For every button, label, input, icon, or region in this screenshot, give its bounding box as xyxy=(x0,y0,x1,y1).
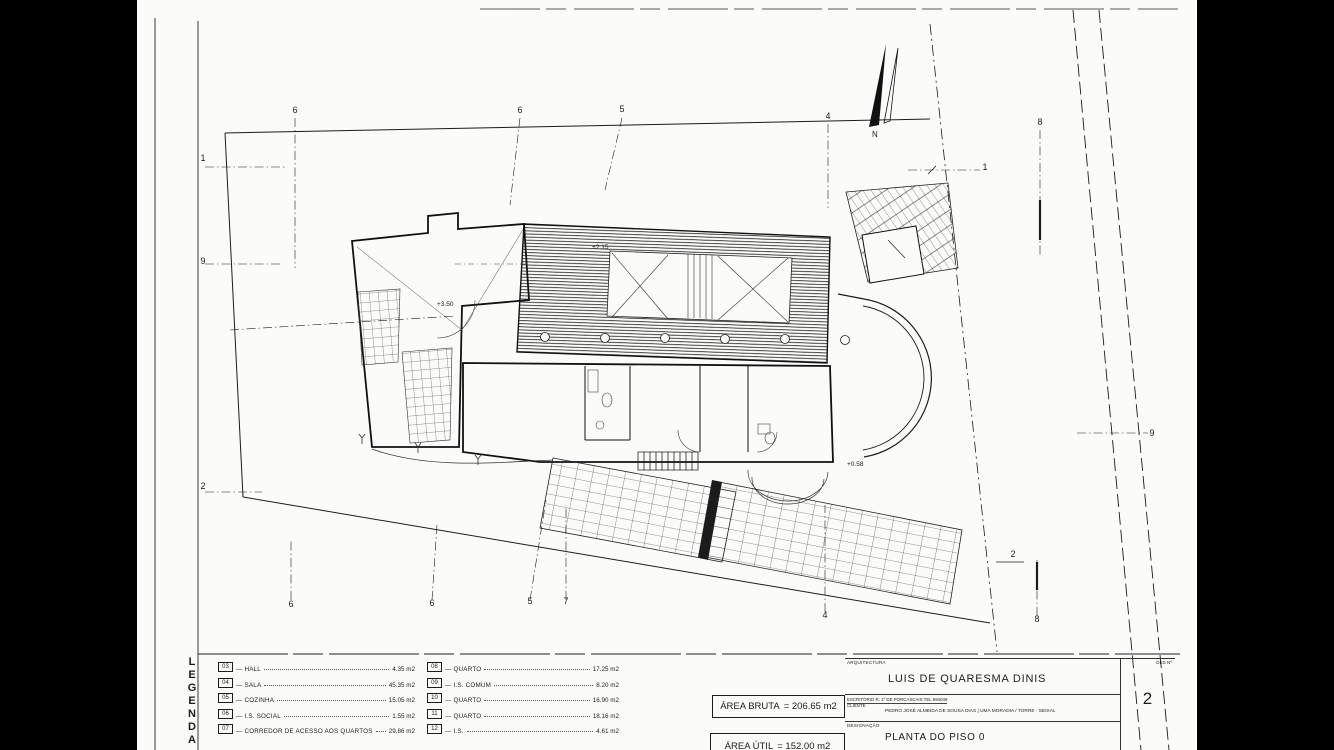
legend-item-label: — QUARTO xyxy=(445,697,481,704)
legend-leader-line xyxy=(284,716,389,717)
legend-item-area: 18.16 m2 xyxy=(593,713,619,720)
designation-label: DESIGNAÇÃO xyxy=(847,723,880,728)
legend-item: 05— COZINHA15.05 m2 xyxy=(218,693,415,704)
legend-leader-line xyxy=(376,731,386,732)
legend-leader-line xyxy=(264,669,389,670)
legend: LEGENDA 03— HALL4.35 m204— SALA45.35 m20… xyxy=(199,656,629,750)
legend-leader-line xyxy=(484,700,589,701)
legend-vertical-title: LEGENDA xyxy=(186,656,198,747)
legend-item-number: 11 xyxy=(427,709,442,719)
legend-item: 03— HALL4.35 m2 xyxy=(218,662,415,673)
legend-item-number: 04 xyxy=(218,678,233,688)
legend-item-number: 07 xyxy=(218,724,233,734)
drawing-title: PLANTA DO PISO 0 xyxy=(885,732,985,743)
legend-leader-line xyxy=(277,700,386,701)
legend-item-number: 03 xyxy=(218,662,233,672)
legend-item-number: 08 xyxy=(427,662,442,672)
sheet-number-cell: DES Nº 2 xyxy=(1120,659,1175,750)
area-bruta-value: = 206.65 m2 xyxy=(784,701,837,712)
legend-item-label: — I.S. xyxy=(445,728,464,735)
legend-item-label: — QUARTO xyxy=(445,666,481,673)
legend-item: 06— I.S. SOCIAL1.55 m2 xyxy=(218,709,415,720)
scanned-drawing-page: N 66548665748192192 +2.15+3.50+0.58 LEGE… xyxy=(0,0,1334,750)
legend-item-area: 4.61 m2 xyxy=(596,728,619,735)
client-label: CLIENTE xyxy=(847,703,866,708)
legend-item-label: — HALL xyxy=(236,666,261,673)
legend-letter-5: D xyxy=(186,721,198,734)
scan-black-margin-right xyxy=(1197,0,1334,750)
title-block-client-row: ESCRITÓRIO R. 1º DE PORCASCAIS TEL 59404… xyxy=(845,695,1120,722)
legend-item-number: 10 xyxy=(427,693,442,703)
legend-column-right: 08— QUARTO17.25 m209— I.S. COMUM8.20 m21… xyxy=(427,662,619,735)
legend-letter-6: A xyxy=(186,734,198,747)
scan-black-margin-left xyxy=(0,0,137,750)
legend-item-area: 4.35 m2 xyxy=(392,666,415,673)
area-bruta-box: ÁREA BRUTA = 206.65 m2 xyxy=(712,695,845,718)
legend-item-number: 09 xyxy=(427,678,442,688)
area-util-value: = 152.00 m2 xyxy=(777,741,830,750)
legend-item: 04— SALA45.35 m2 xyxy=(218,678,415,689)
legend-letter-0: L xyxy=(186,656,198,669)
title-block-architect-row: ARQUITECTURA LUIS DE QUARESMA DINIS xyxy=(845,659,1120,695)
legend-item-label: — CORREDOR DE ACESSO AOS QUARTOS xyxy=(236,728,373,735)
legend-leader-line xyxy=(264,685,385,686)
legend-item: 08— QUARTO17.25 m2 xyxy=(427,662,619,673)
legend-item: 11— QUARTO18.16 m2 xyxy=(427,709,619,720)
legend-letter-4: N xyxy=(186,708,198,721)
legend-item-area: 29.86 m2 xyxy=(389,728,415,735)
legend-item-area: 15.05 m2 xyxy=(389,697,415,704)
legend-letter-2: G xyxy=(186,682,198,695)
legend-column-left: 03— HALL4.35 m204— SALA45.35 m205— COZIN… xyxy=(218,662,415,735)
legend-leader-line xyxy=(494,685,593,686)
title-block-designation-row: DESIGNAÇÃO PLANTA DO PISO 0 xyxy=(845,722,1120,750)
architecture-label: ARQUITECTURA xyxy=(847,660,886,665)
architect-name: LUIS DE QUARESMA DINIS xyxy=(888,673,1046,685)
sheet-number: 2 xyxy=(1120,689,1175,709)
legend-item-number: 06 xyxy=(218,709,233,719)
legend-item: 10— QUARTO16.90 m2 xyxy=(427,693,619,704)
title-block-main: ARQUITECTURA LUIS DE QUARESMA DINIS ESCR… xyxy=(845,659,1121,750)
legend-item-number: 05 xyxy=(218,693,233,703)
sheet-number-label: DES Nº xyxy=(1156,660,1172,665)
legend-item-label: — COZINHA xyxy=(236,697,274,704)
legend-item-label: — SALA xyxy=(236,682,261,689)
legend-item-label: — QUARTO xyxy=(445,713,481,720)
legend-item-number: 12 xyxy=(427,724,442,734)
title-block: ARQUITECTURA LUIS DE QUARESMA DINIS ESCR… xyxy=(845,658,1175,750)
paper-sheet xyxy=(137,0,1197,750)
legend-item-area: 1.55 m2 xyxy=(392,713,415,720)
legend-leader-line xyxy=(484,716,589,717)
legend-item: 12— I.S.4.61 m2 xyxy=(427,724,619,735)
legend-item: 07— CORREDOR DE ACESSO AOS QUARTOS29.86 … xyxy=(218,724,415,735)
legend-letter-1: E xyxy=(186,669,198,682)
area-bruta-label: ÁREA BRUTA xyxy=(720,701,779,712)
legend-leader-line xyxy=(467,731,594,732)
legend-item-area: 17.25 m2 xyxy=(593,666,619,673)
area-util-box: ÁREA ÚTIL = 152.00 m2 xyxy=(710,733,845,750)
legend-letter-3: E xyxy=(186,695,198,708)
area-util-label: ÁREA ÚTIL xyxy=(725,741,774,750)
legend-item: 09— I.S. COMUM8.20 m2 xyxy=(427,678,619,689)
legend-leader-line xyxy=(484,669,589,670)
legend-item-label: — I.S. COMUM xyxy=(445,682,491,689)
legend-item-area: 8.20 m2 xyxy=(596,682,619,689)
client-line: PEDRO JOSÉ ALMEIDA DE SOUSA DIAS | UMA M… xyxy=(885,709,1056,714)
legend-item-area: 16.90 m2 xyxy=(593,697,619,704)
legend-item-label: — I.S. SOCIAL xyxy=(236,713,281,720)
legend-item-area: 45.35 m2 xyxy=(389,682,415,689)
